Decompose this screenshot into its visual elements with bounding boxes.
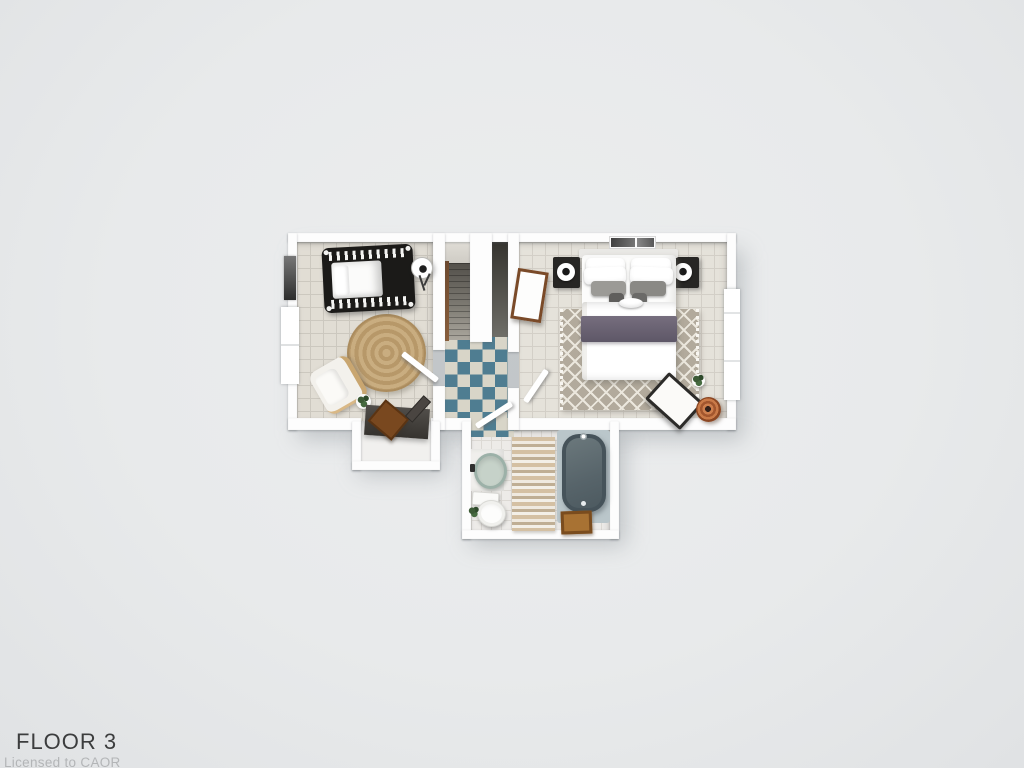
nightstand-left	[553, 257, 580, 288]
plant-leaves	[689, 371, 708, 390]
stair-column-wall	[470, 233, 492, 342]
wall-divider-b-lower	[508, 388, 519, 430]
crib-post	[326, 306, 331, 311]
caption-block: FLOOR 3 Licensed to CAOR	[4, 729, 121, 770]
crib-post	[408, 302, 413, 307]
floor-title: FLOOR 3	[16, 729, 121, 755]
crib-post	[405, 246, 410, 251]
purple-blanket	[581, 316, 677, 342]
tub-faucet	[580, 433, 587, 440]
crib	[321, 244, 415, 314]
stair-landing	[445, 242, 470, 263]
sink-faucet	[470, 464, 475, 472]
crib-slats	[329, 248, 406, 261]
hall-checkered-floor	[445, 337, 508, 430]
breakfast-bowl	[619, 298, 643, 308]
tub-drain	[581, 501, 586, 506]
copper-basket	[696, 397, 721, 422]
wall-divider-a-upper	[433, 233, 445, 350]
floor-plan-render: FLOOR 3 Licensed to CAOR	[0, 0, 1024, 768]
bedroom-plant	[689, 371, 708, 390]
crib-pillow	[334, 265, 350, 296]
left-window-mullion	[281, 344, 299, 346]
bathroom-wall-right	[610, 421, 619, 539]
wall-art	[609, 236, 656, 249]
floor-lamp	[411, 257, 433, 279]
sink-basin	[474, 453, 507, 489]
stairwell-void	[492, 242, 508, 337]
plant-leaves	[466, 504, 482, 520]
bathroom-wall-left	[462, 421, 471, 539]
bathtub-deck	[557, 430, 610, 523]
wood-stool	[561, 510, 593, 534]
right-window-mullion-2	[724, 360, 740, 362]
right-wall-window	[724, 289, 740, 400]
right-window-mullion-1	[724, 312, 740, 314]
bathroom-plant	[466, 504, 482, 520]
alcove-wall-bottom	[352, 461, 440, 470]
double-bed	[582, 255, 676, 380]
striped-runner-rug	[512, 437, 555, 531]
bathroom-wall-bottom	[462, 530, 619, 539]
staircase	[449, 263, 470, 340]
wall-bottom-left	[288, 418, 361, 430]
dark-window-upper-left	[284, 256, 296, 300]
bathtub	[562, 434, 606, 512]
